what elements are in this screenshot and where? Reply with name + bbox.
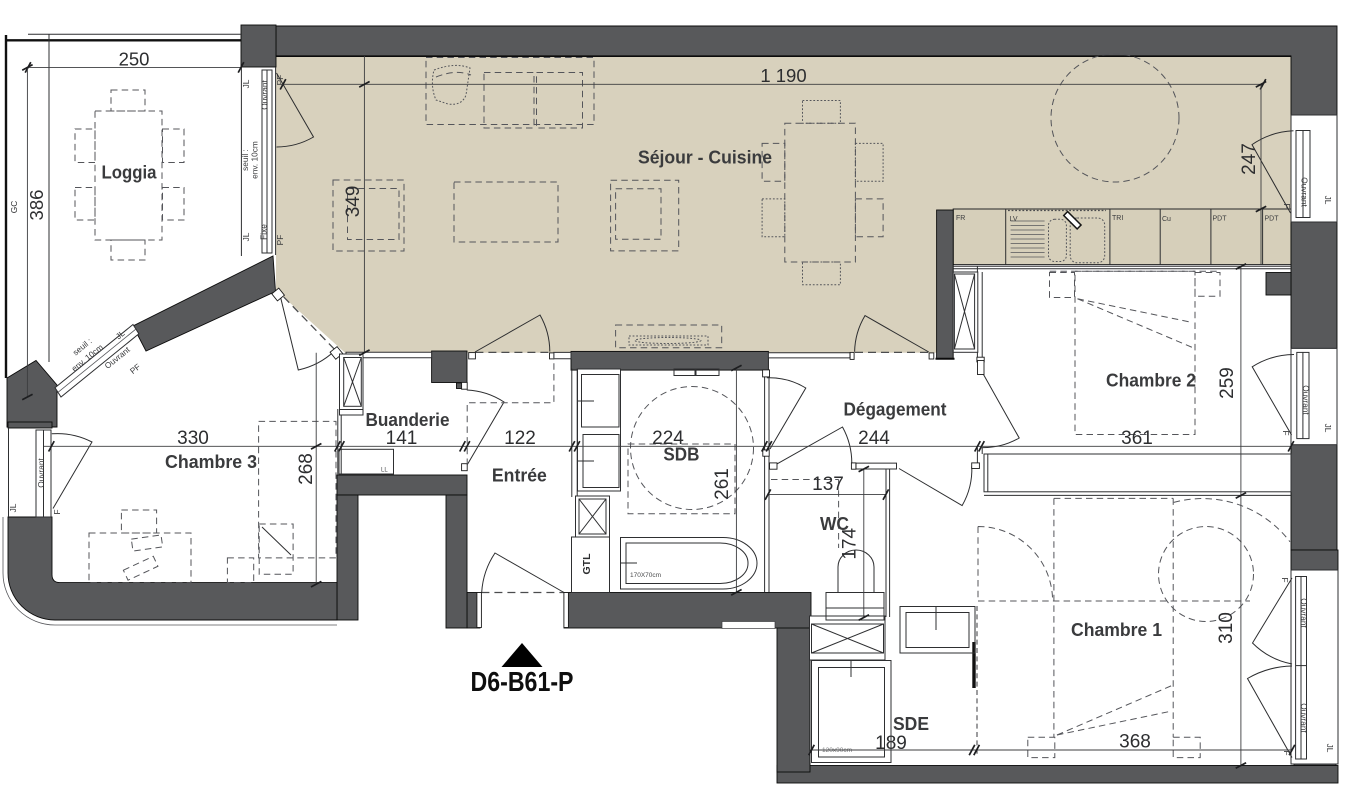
svg-text:PDT: PDT	[1213, 216, 1228, 223]
svg-text:D6-B61-P: D6-B61-P	[471, 666, 574, 697]
svg-text:GC: GC	[9, 201, 19, 213]
svg-text:141: 141	[386, 428, 418, 449]
svg-text:Chambre 2: Chambre 2	[1106, 370, 1196, 391]
svg-text:PDT: PDT	[1265, 216, 1280, 223]
svg-text:PF: PF	[275, 235, 285, 246]
svg-text:SDB: SDB	[663, 444, 699, 465]
svg-text:Buanderie: Buanderie	[366, 409, 450, 430]
svg-text:LL: LL	[381, 468, 388, 474]
svg-text:Ouvrant: Ouvrant	[260, 80, 270, 110]
svg-text:330: 330	[177, 428, 209, 449]
svg-text:GTL: GTL	[581, 553, 593, 575]
svg-text:Séjour - Cuisine: Séjour - Cuisine	[638, 147, 772, 168]
svg-text:137: 137	[812, 474, 844, 495]
svg-text:env. 10cm: env. 10cm	[250, 141, 260, 179]
svg-text:Ouvrant: Ouvrant	[1299, 598, 1309, 628]
svg-text:361: 361	[1121, 428, 1153, 449]
svg-text:368: 368	[1119, 732, 1151, 753]
svg-text:Entrée: Entrée	[492, 465, 547, 486]
svg-text:Ouvrant: Ouvrant	[1299, 703, 1309, 733]
svg-text:WC: WC	[820, 513, 849, 534]
svg-text:Ouvrant: Ouvrant	[36, 458, 46, 488]
svg-text:F: F	[52, 509, 62, 514]
svg-text:JL: JL	[1323, 196, 1333, 205]
svg-text:259: 259	[1217, 367, 1238, 399]
svg-text:F: F	[1282, 750, 1292, 755]
svg-text:310: 310	[1216, 612, 1237, 644]
svg-text:LV: LV	[1010, 216, 1018, 223]
svg-text:JL: JL	[1323, 424, 1333, 433]
svg-text:1 190: 1 190	[760, 65, 806, 86]
svg-text:FR: FR	[956, 215, 965, 222]
svg-text:TRI: TRI	[1112, 215, 1123, 222]
svg-text:170X70cm: 170X70cm	[630, 572, 661, 579]
svg-text:Cu: Cu	[1162, 216, 1171, 223]
svg-text:F: F	[1282, 203, 1292, 208]
svg-text:Loggia: Loggia	[102, 162, 158, 183]
svg-text:Chambre 3: Chambre 3	[165, 451, 257, 472]
svg-text:seuil :: seuil :	[240, 149, 250, 171]
svg-text:250: 250	[119, 49, 150, 70]
svg-text:F: F	[1280, 577, 1290, 582]
svg-text:261: 261	[712, 468, 733, 500]
svg-text:JL: JL	[1325, 744, 1335, 753]
svg-text:122: 122	[504, 428, 536, 449]
svg-text:Dégagement: Dégagement	[844, 399, 947, 420]
svg-text:PF: PF	[275, 75, 285, 86]
svg-text:SDE: SDE	[893, 713, 929, 734]
svg-text:Fixe: Fixe	[259, 224, 269, 240]
svg-text:189: 189	[875, 733, 907, 754]
svg-text:Ouvrant: Ouvrant	[1300, 177, 1310, 207]
svg-text:349: 349	[343, 186, 364, 218]
svg-text:Chambre 1: Chambre 1	[1071, 619, 1162, 640]
svg-text:244: 244	[858, 428, 890, 449]
svg-text:Ouvrant: Ouvrant	[1301, 385, 1311, 415]
svg-text:386: 386	[26, 190, 47, 221]
svg-text:120x90cm: 120x90cm	[822, 747, 852, 754]
svg-text:268: 268	[296, 453, 317, 485]
svg-text:247: 247	[1239, 143, 1260, 175]
svg-text:JL: JL	[8, 503, 18, 512]
svg-text:F: F	[1281, 430, 1291, 435]
svg-text:JL: JL	[241, 79, 251, 88]
svg-text:JL: JL	[241, 232, 251, 241]
